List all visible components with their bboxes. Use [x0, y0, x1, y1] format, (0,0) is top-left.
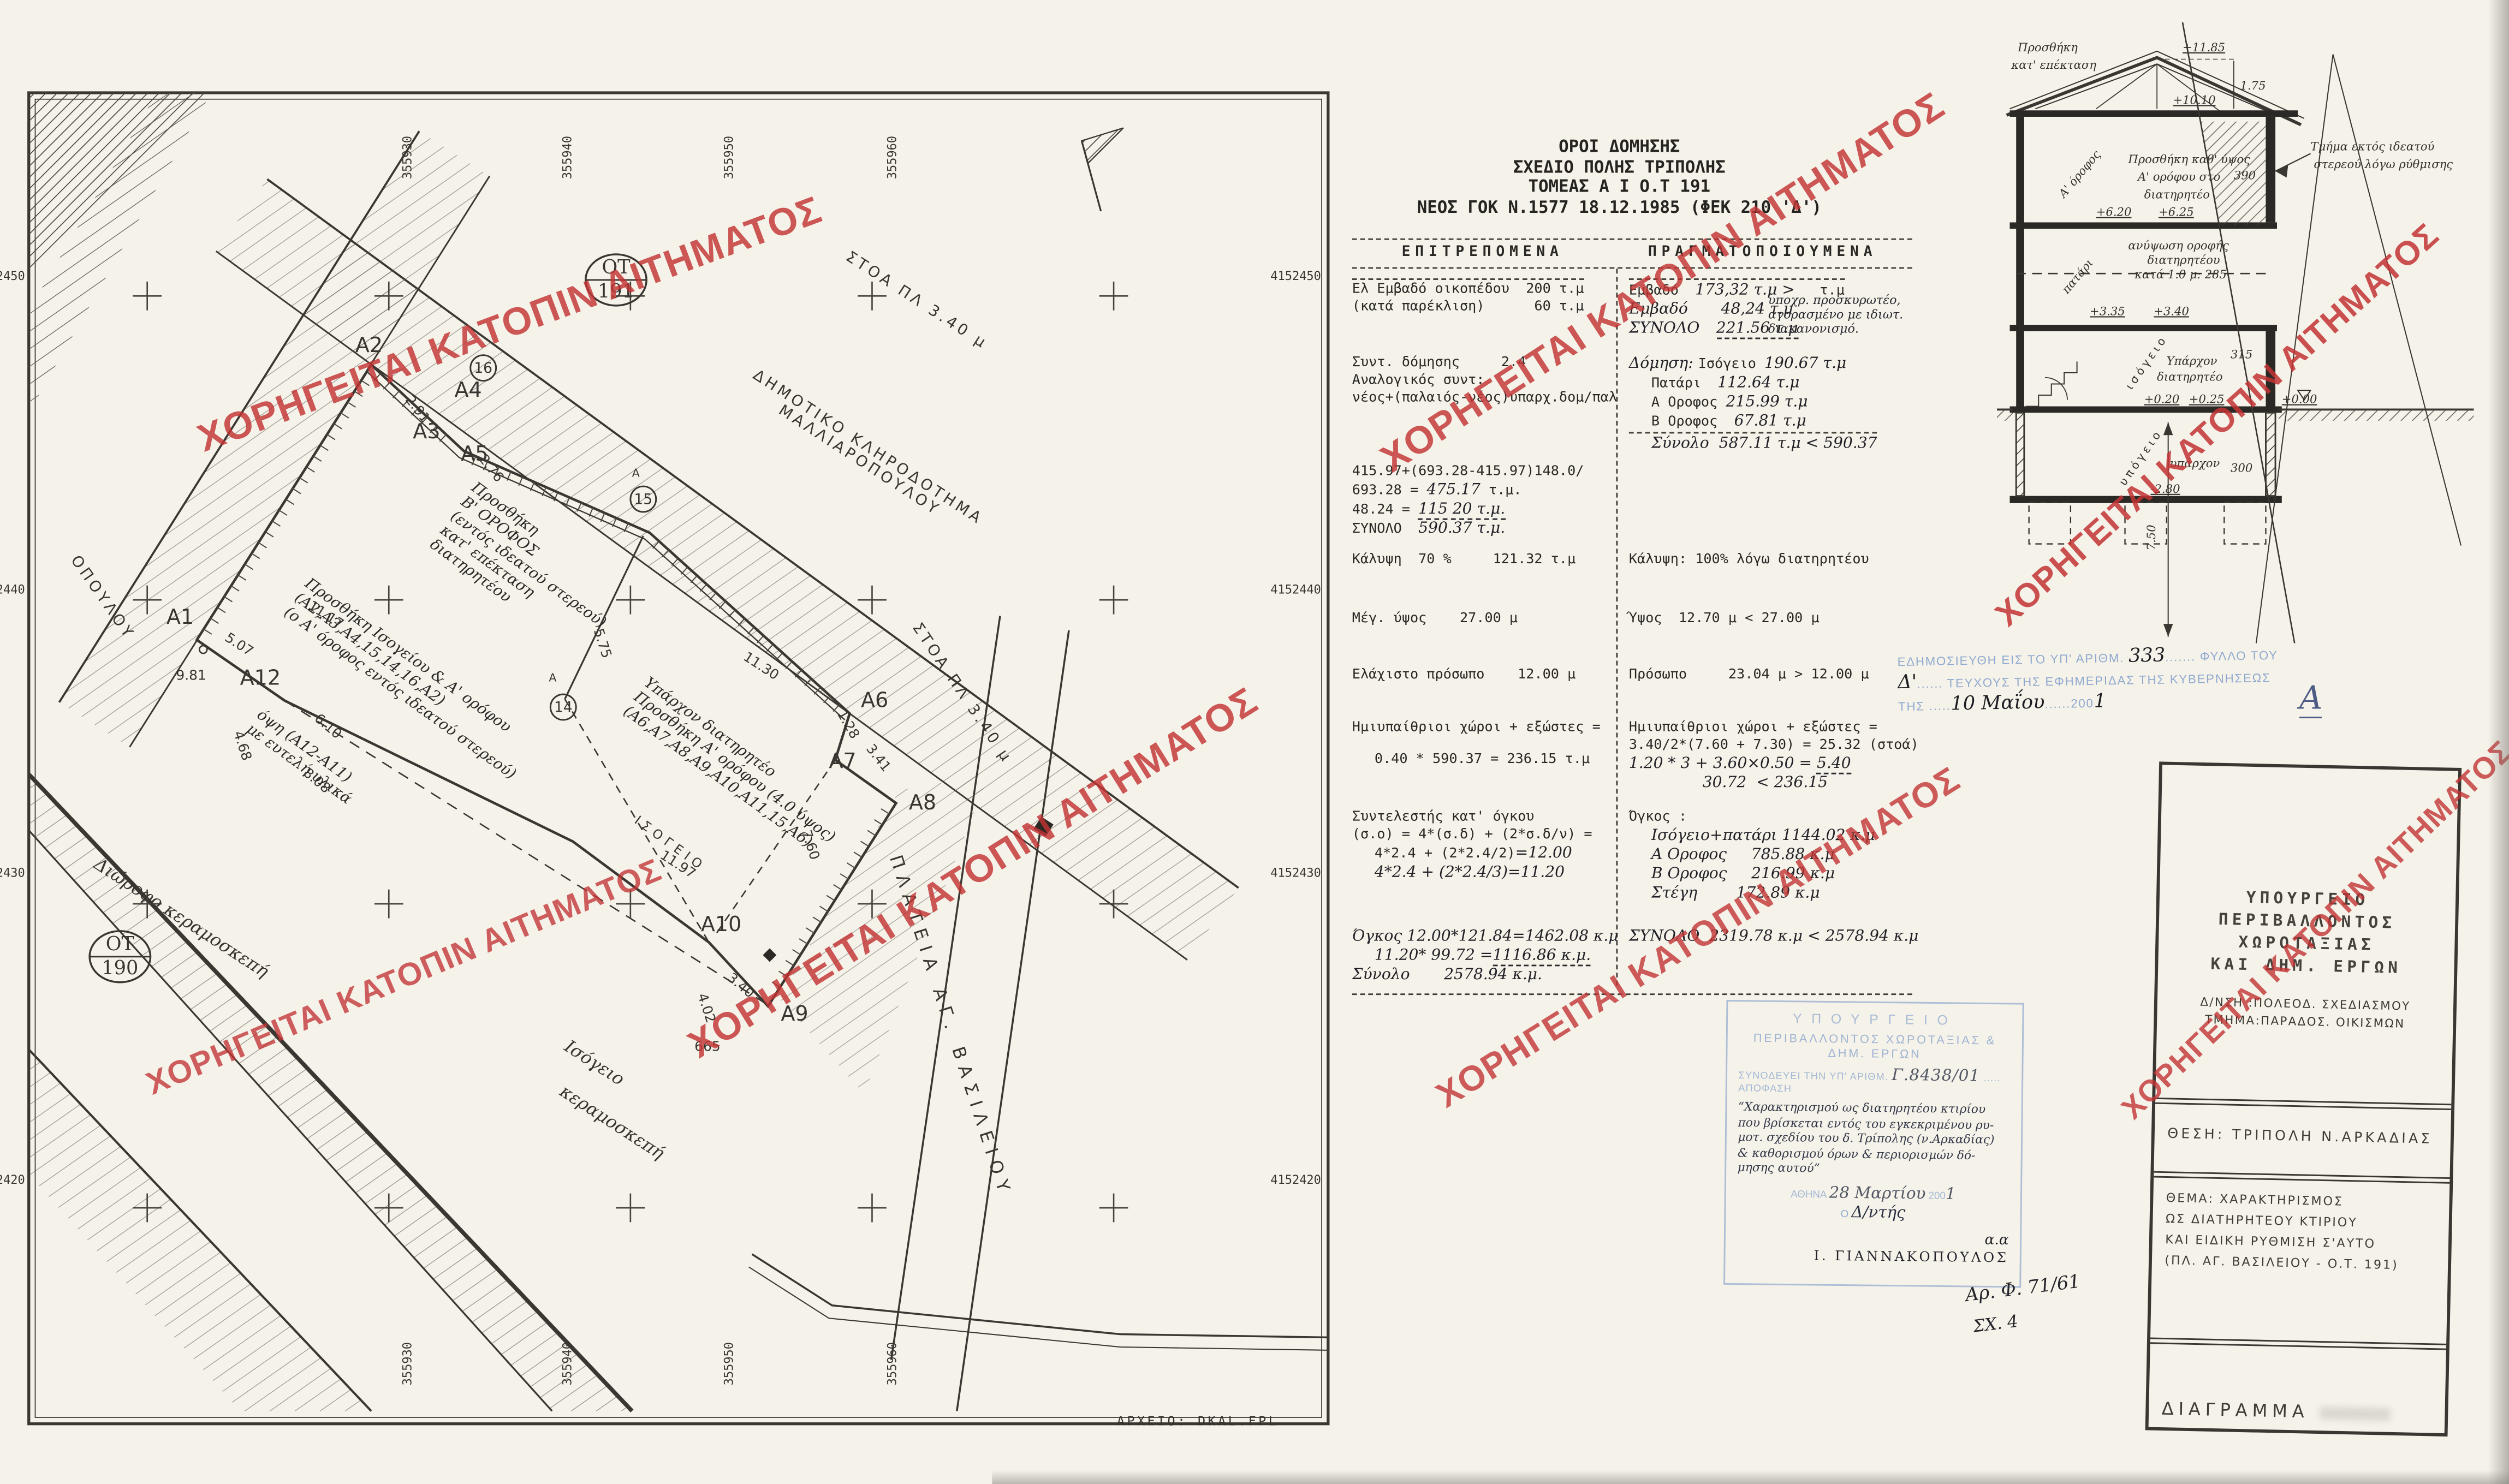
terms-cell-l: Ημιυπαίθριοι χώροι + εξώστες =0.40 * 590… [1352, 720, 1613, 794]
stamp-body-line: “Χαρακτηρισμού ως διατηρητέου κτιρίου [1738, 1099, 2011, 1117]
section-label: πατάρι [2059, 256, 2096, 296]
terms-line: Κάλυψη 70 % 121.32 τ.μ [1352, 552, 1613, 569]
map-label: όψη (Α12-Α11)με ευτελή υλικά [243, 705, 366, 808]
handwritten-value: 1.20 * 3 + 3.60×0.50 = [1629, 755, 1817, 772]
printed-text: τ.μ. [1481, 483, 1522, 499]
handwritten-value: Όγκος [1352, 928, 1407, 945]
stamp-decision-ref: ΣΥΝΟΔΕΥΕΙ ΤΗΝ ΥΠ' ΑΡΙΘΜ. Γ.8438/01 .....… [1738, 1065, 2011, 1097]
handwritten-value: Δόμηση: [1629, 355, 1698, 373]
map-label: 4152420 [0, 1173, 25, 1187]
section-label: 300 [2231, 461, 2252, 475]
terms-cell-r: Ύψος 12.70 μ < 27.00 μ [1629, 611, 1912, 629]
terms-line: 3.40/2*(7.60 + 7.30) = 25.32 (στοά) [1629, 737, 1919, 755]
terms-line: 4*2.4 + (2*2.4/3)=11.20 [1352, 864, 1613, 883]
map-label: 355960 [885, 1342, 899, 1385]
handwritten-value: Σύνολο [1352, 966, 1444, 984]
map-label: Α3 [413, 419, 440, 443]
building-terms-table: ΕΠΙΤΡΕΠΟΜΕΝΑ ΠΡΑΓΜΑΤΟΠΟΙΟΥΜΕΝΑ Ελ Εμβαδό… [1352, 239, 1912, 995]
printed-text: 693.28 = [1352, 483, 1427, 499]
map-label: ΔΗΜΟΤΙΚΟ ΚΛΗΡΟΔΟΤΗΜΑ [750, 366, 987, 528]
printed-text: Όγκος : [1629, 809, 1687, 825]
handwritten-value: 30.72 < 236.15 [1703, 774, 1828, 792]
col-header-permitted: ΕΠΙΤΡΕΠΟΜΕΝΑ [1352, 245, 1613, 262]
printed-text: 4*2.4 + (2*2.4/2) [1375, 847, 1515, 862]
printed-text: ΣΥΝΟΔΕΥΕΙ ΤΗΝ ΥΠ' ΑΡΙΘΜ. [1738, 1070, 1892, 1083]
terms-line: Σύνολο 587.11 τ.μ < 590.37 [1629, 432, 1877, 454]
handwritten-value: 333 [2129, 643, 2166, 666]
map-label: 5.07 [222, 629, 256, 659]
handwritten-value: Α Οροφος [1651, 847, 1751, 864]
map-label: κεραμοσκεπή [556, 1080, 668, 1163]
section-label: Υπάρχον [2167, 354, 2217, 367]
stamp-date-line: ΑΘΗΝΑ 28 Μαρτίου 2001 [1737, 1184, 2009, 1204]
terms-line: Μέγ. ύψος 27.00 μ [1352, 611, 1613, 629]
terms-line: Όγκος 12.00*121.84=1462.08 κ.μ [1352, 928, 1613, 947]
handwritten-value: Ισόγειο+πατάρι [1651, 827, 1782, 844]
terms-line: Κάλυψη: 100% λόγω διατηρητέου [1629, 552, 1912, 569]
handwritten-value: Γ.8438/01 [1892, 1067, 1980, 1086]
handwritten-value: Σύνολο [1651, 435, 1719, 452]
terms-line: 11.20* 99.72 =1116.86 κ.μ. [1352, 947, 1613, 966]
stamp-body-line: μοτ. σχεδίου του δ. Τρίπολης (ν.Αρκαδίας… [1738, 1130, 2010, 1148]
printed-text: ΑΘΗΝΑ [1791, 1189, 1829, 1201]
section-label: +3.35 [2090, 304, 2125, 318]
terms-line: Δόμηση: Ισόγειο 190.67 τ.μ [1629, 355, 1912, 374]
section-label: διατηρητέου [2148, 253, 2220, 267]
stamp-ministry-dept: ΠΕΡΙΒΑΛΛΟΝΤΟΣ ΧΩΡΟΤΑΞΙΑΣ & ΔΗΜ. ΕΡΓΩΝ [1739, 1030, 2011, 1062]
terms-title-line: ΣΧΕΔΙΟ ΠΟΛΗΣ ΤΡΙΠΟΛΗΣ [1380, 158, 1859, 178]
terms-margin-note: υποχρ. προσκυρωτέο, αγορασμένο με ιδιωτ.… [1768, 293, 1916, 336]
printed-text: Ισόγειο [1698, 357, 1764, 373]
printed-text: ......200 [2044, 696, 2094, 711]
terms-line: (κατά παρέκλιση) 60 τ.μ [1352, 299, 1613, 317]
map-label: Α [549, 671, 556, 684]
map-label: Α1 [167, 605, 194, 629]
handwritten-value: 12.00*121.84=1462.08 κ.μ [1407, 928, 1618, 945]
handwritten-value: 215.99 τ.μ [1726, 394, 1808, 411]
handwritten-value: =12.00 [1515, 845, 1572, 862]
scan-edge-shadow [992, 1470, 2509, 1484]
section-label: Α' όροφος [2055, 147, 2103, 201]
map-label: Α10 [701, 912, 742, 936]
handwritten-value: 587.11 τ.μ < 590.37 [1719, 435, 1877, 452]
publication-stamp-line: ΤΗΣ .....10 Μαΐου......2001 [1898, 688, 2311, 717]
section-label: +0.20 [2144, 392, 2180, 406]
map-label: 4152430 [0, 866, 25, 880]
handwritten-value: 11.20* 99.72 = [1375, 947, 1493, 964]
section-label: +3.40 [2154, 304, 2189, 318]
stamp-signatory-name: Ι. ΓΙΑΝΝΑΚΟΠΟΥΛΟΣ [1737, 1247, 2009, 1266]
title-block-location: ΘΕΣΗ: ΤΡΙΠΟΛΗ Ν.ΑΡΚΑΔΙΑΣ [2154, 1098, 2451, 1177]
stamp-ministry-name: ΥΠΟΥΡΓΕΙΟ [1739, 1010, 2011, 1029]
map-label: 355940 [561, 136, 574, 179]
title-block-drawing-type: ΔΙΑΓΡΑΜΜΑ [2161, 1398, 2432, 1425]
printed-text: (κατά παρέκλιση) 60 τ.μ [1352, 299, 1584, 315]
terms-line: 30.72 < 236.15 [1629, 774, 1919, 794]
section-label: ανύψωση οροφής [2128, 239, 2229, 252]
section-label: διατηρητέο [2157, 370, 2222, 384]
section-label: διατηρητέο [2144, 187, 2210, 201]
map-label: 5.75 [591, 627, 615, 660]
terms-line: (σ.ο) = 4*(σ.δ) + (2*σ.δ/ν) = [1352, 827, 1613, 844]
handwritten-value: 5.40 [1817, 755, 1851, 774]
printed-text: ΣΥΝΟΛΟ [1352, 522, 1418, 538]
terms-cell-r: Ημιυπαίθριοι χώροι + εξώστες =3.40/2*(7.… [1629, 720, 1919, 794]
printed-text: 200 [1925, 1191, 1946, 1202]
sheet-number-note: ΣΧ. 4 [1972, 1312, 2019, 1337]
terms-row: Μέγ. ύψος 27.00 μΎψος 12.70 μ < 27.00 μ [1352, 611, 1912, 629]
section-label: κατ' επέκταση [2011, 58, 2096, 71]
block-number: 190 [102, 957, 138, 979]
terms-line: ΣΥΝΟΛΟ 590.37 τ.μ. [1352, 520, 1613, 539]
terms-line: Β Οροφος 67.81 τ.μ [1629, 413, 1912, 432]
terms-line: Ημιυπαίθριοι χώροι + εξώστες = [1352, 720, 1613, 737]
printed-text [1688, 302, 1721, 318]
printed-text: Ύψος 12.70 μ < 27.00 μ [1629, 611, 1820, 627]
terms-line: Πατάρι 112.64 τ.μ [1629, 374, 1912, 394]
terms-cell-r: Δόμηση: Ισόγειο 190.67 τ.μΠατάρι 112.64 … [1629, 355, 1912, 455]
section-label: Προσθήκη [2017, 40, 2078, 54]
terms-cell-r [1629, 464, 1912, 539]
map-label: 355950 [722, 1342, 736, 1385]
handwritten-value: 190.67 τ.μ [1764, 355, 1846, 373]
terms-line: Συντελεστής κατ' όγκου [1352, 809, 1613, 827]
terms-line: Πρόσωπο 23.04 μ > 12.00 μ [1629, 667, 1912, 684]
terms-cell-l: 415.97+(693.28-415.97)148.0/693.28 = 475… [1352, 464, 1613, 539]
section-label: 7.50 [2144, 525, 2158, 550]
handwritten-value: 67.81 τ.μ [1734, 413, 1806, 430]
map-label: 4152450 [0, 270, 25, 283]
circled-point-label: 16 [474, 360, 492, 377]
handwritten-value: 1 [1946, 1186, 1956, 1203]
printed-text: Ελάχιστο πρόσωπο 12.00 μ [1352, 667, 1575, 683]
printed-text: 48.24 = [1352, 502, 1418, 518]
handwritten-value: 2578.94 κ.μ. [1444, 966, 1542, 984]
printed-text: ...... ΤΕΥΧΟΥΣ ΤΗΣ ΕΦΗΜΕΡΙΔΑΣ ΤΗΣ ΚΥΒΕΡΝ… [1917, 671, 2271, 692]
circled-point-label: 14 [554, 699, 573, 716]
section-label: 315 [2231, 348, 2252, 361]
terms-line: 0.40 * 590.37 = 236.15 τ.μ [1352, 752, 1613, 770]
handwritten-value: 1 [2094, 689, 2106, 712]
map-label: Ισόγειο [561, 1035, 628, 1089]
map-label: 9.81 [176, 667, 206, 683]
terms-line: 1.20 * 3 + 3.60×0.50 = 5.40 [1629, 755, 1919, 774]
terms-line: 4*2.4 + (2*2.4/2)=12.00 [1352, 845, 1613, 864]
printed-text: Μέγ. ύψος 27.00 μ [1352, 611, 1518, 627]
section-label: 390 [2234, 168, 2256, 182]
map-label: 355950 [722, 136, 736, 179]
map-label: 4152420 [1270, 1173, 1321, 1187]
handwritten-value: 10 Μαΐου [1951, 690, 2045, 714]
map-label: 355940 [561, 1342, 574, 1385]
faded-word [2319, 1406, 2389, 1421]
scan-edge-shadow [2488, 0, 2509, 1484]
ministry-approval-stamp: ΥΠΟΥΡΓΕΙΟ ΠΕΡΙΒΑΛΛΟΝΤΟΣ ΧΩΡΟΤΑΞΙΑΣ & ΔΗΜ… [1723, 1000, 2024, 1288]
handwritten-value: 475.17 [1426, 481, 1480, 499]
section-label: +11.85 [2183, 40, 2225, 54]
printed-text: Ελ Εμβαδό οικοπέδου 200 τ.μ [1352, 282, 1584, 297]
printed-text: Συντελεστής κατ' όγκου [1352, 809, 1535, 825]
handwritten-value: 115 20 τ.μ. [1418, 500, 1505, 520]
printed-text: Ημιυπαίθριοι χώροι + εξώστες = [1629, 720, 1877, 736]
map-label: ΜΑΛΛΙΑΡΟΠΟΥΛΟΥ [776, 401, 944, 519]
terms-cell-l: Ελάχιστο πρόσωπο 12.00 μ [1352, 667, 1613, 684]
printed-text [1699, 321, 1716, 337]
section-label: 1.75 [2240, 79, 2266, 92]
section-label: +6.25 [2159, 205, 2194, 219]
map-label: 355960 [885, 136, 899, 179]
stamp-body-line: μησης αυτού” [1738, 1160, 2010, 1178]
section-label: Προσθήκη καθ' ύψος [2127, 152, 2250, 166]
terms-row: Ελάχιστο πρόσωπο 12.00 μΠρόσωπο 23.04 μ … [1352, 667, 1912, 684]
map-label: ΣΤΟΑ ΠΛ 3.40 μ [843, 247, 992, 353]
map-label: 4152440 [1270, 583, 1321, 597]
map-label: Α8 [909, 790, 936, 814]
terms-cell-r: Κάλυψη: 100% λόγω διατηρητέου [1629, 552, 1912, 569]
section-label: κατά 1.0 μ: 285 [2134, 267, 2227, 281]
map-label: Α6 [861, 688, 888, 712]
terms-cell-l: Συντελεστής κατ' όγκου(σ.ο) = 4*(σ.δ) + … [1352, 809, 1613, 904]
printed-text: Κάλυψη: 100% λόγω διατηρητέου [1629, 552, 1869, 568]
terms-line: Σύνολο 2578.94 κ.μ. [1352, 966, 1613, 985]
handwritten-value: 590.37 τ.μ. [1418, 520, 1505, 538]
terms-cell-l: Μέγ. ύψος 27.00 μ [1352, 611, 1613, 629]
stamp-decision-text: “Χαρακτηρισμού ως διατηρητέου κτιρίουπου… [1738, 1099, 2011, 1179]
map-label: 355930 [401, 1342, 414, 1385]
stamp-director-line: Ο Δ/ντής [1737, 1203, 2009, 1223]
printed-text: Πατάρι [1651, 376, 1717, 392]
section-label: +0.00 [2282, 392, 2317, 406]
printed-text: Πρόσωπο 23.04 μ > 12.00 μ [1629, 667, 1869, 683]
handwritten-value: Β Οροφος [1651, 866, 1751, 883]
terms-table-header: ΕΠΙΤΡΕΠΟΜΕΝΑ ΠΡΑΓΜΑΤΟΠΟΙΟΥΜΕΝΑ [1352, 239, 1912, 269]
scanned-planning-document: 3559303559403559503559603559303559403559… [0, 0, 2509, 1484]
handwritten-value: Δ/ντής [1851, 1205, 1905, 1223]
north-flag-icon [1081, 128, 1123, 211]
map-label: Α [632, 466, 640, 479]
section-label: +6.20 [2096, 205, 2132, 219]
handwritten-letter-a: Α [2299, 678, 2322, 718]
publication-stamp: ΕΔΗΜΟΣΙΕΥΘΗ ΕΙΣ ΤΟ ΥΠ' ΑΡΙΘΜ. 333.......… [1897, 643, 2311, 717]
terms-cell-l: Κάλυψη 70 % 121.32 τ.μ [1352, 552, 1613, 569]
title-block-subject: ΘΕΜΑ: ΧΑΡΑΚΤΗΡΙΣΜΟΣΩΣ ΔΙΑΤΗΡΗΤΕΟΥ ΚΤΙΡΙΟ… [2150, 1171, 2450, 1344]
terms-row: 415.97+(693.28-415.97)148.0/693.28 = 475… [1352, 464, 1912, 539]
printed-text: 3.40/2*(7.60 + 7.30) = 25.32 (στοά) [1629, 737, 1919, 753]
printed-text: Β Οροφος [1651, 414, 1734, 430]
section-label: Α' ορόφου στο [2137, 170, 2220, 183]
map-label: 4152430 [1270, 866, 1321, 880]
map-label: 4152450 [1270, 270, 1321, 283]
terms-line: Α Οροφος 215.99 τ.μ [1629, 394, 1912, 413]
terms-cell-l: Όγκος 12.00*121.84=1462.08 κ.μ11.20* 99.… [1352, 914, 1613, 986]
handwritten-value: 1116.86 κ.μ. [1493, 947, 1591, 966]
terms-line: 693.28 = 475.17 τ.μ. [1352, 481, 1613, 500]
section-label: Τμήμα εκτός ιδεατού [2311, 140, 2435, 153]
terms-row: Κάλυψη 70 % 121.32 τ.μΚάλυψη: 100% λόγω … [1352, 552, 1912, 569]
map-label: Α7 [829, 749, 856, 773]
archive-file-label: ΑΡΧΕΙΟ: DKAL.FPL [1117, 1414, 1279, 1428]
map-label: 3.41 [863, 741, 894, 775]
printed-text: Ο [1840, 1209, 1851, 1220]
map-label: Α12 [240, 666, 281, 690]
printed-text: Ημιυπαίθριοι χώροι + εξώστες = [1352, 720, 1601, 736]
terms-line: Ύψος 12.70 μ < 27.00 μ [1629, 611, 1912, 629]
printed-text: Κάλυψη 70 % 121.32 τ.μ [1352, 552, 1575, 568]
terms-line: 48.24 = 115 20 τ.μ. [1352, 500, 1613, 520]
handwritten-value: 28 Μαρτίου [1829, 1185, 1925, 1203]
handwritten-value: =11.20 [1508, 864, 1565, 881]
circled-point-label: 15 [634, 491, 653, 508]
block-number: ΟΤ [106, 933, 135, 955]
printed-text: (σ.ο) = 4*(σ.δ) + (2*σ.δ/ν) = [1352, 827, 1592, 843]
terms-line: Ελ Εμβαδό οικοπέδου 200 τ.μ [1352, 278, 1584, 299]
printed-text: ....... ΦΥΛΛΟ ΤΟΥ [2165, 648, 2278, 664]
handwritten-value: 112.64 τ.μ [1717, 374, 1799, 392]
map-label: Α4 [454, 378, 481, 402]
handwritten-value: Δ' [1898, 670, 1917, 693]
printed-text: ΕΔΗΜΟΣΙΕΥΘΗ ΕΙΣ ΤΟ ΥΠ' ΑΡΙΘΜ. [1897, 651, 2129, 669]
section-label: στερεού λόγω ρύθμισης [2314, 157, 2453, 171]
handwritten-value: 4*2.4 + (2*2.4/3) [1375, 864, 1508, 881]
section-label: +10.10 [2173, 93, 2215, 107]
terms-cell-r: Πρόσωπο 23.04 μ > 12.00 μ [1629, 667, 1912, 684]
terms-line: Ημιυπαίθριοι χώροι + εξώστες = [1629, 720, 1919, 737]
map-label: 4152440 [0, 583, 25, 597]
map-label: 355930 [401, 136, 414, 179]
terms-line: Ελάχιστο πρόσωπο 12.00 μ [1352, 667, 1613, 684]
printed-text: ΤΗΣ ..... [1898, 699, 1951, 714]
printed-text: Α Οροφος [1651, 395, 1726, 411]
printed-text: 0.40 * 590.37 = 236.15 τ.μ [1375, 752, 1590, 768]
terms-title-line: ΟΡΟΙ ΔΟΜΗΣΗΣ [1380, 138, 1859, 158]
terms-row: Ημιυπαίθριοι χώροι + εξώστες =0.40 * 590… [1352, 720, 1912, 794]
